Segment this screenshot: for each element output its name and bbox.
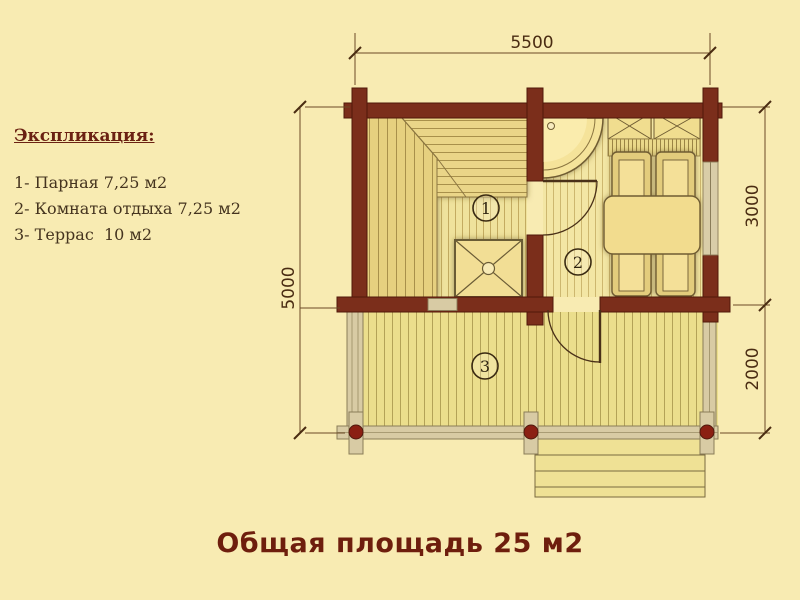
room-2-number: 2 [573, 253, 583, 272]
floor-plan-drawing: 1 2 3 5500 5000 [0, 0, 800, 600]
terrace-floor [363, 312, 718, 428]
wall-middle-right [600, 297, 730, 312]
floor-plan-page: Экспликация: 1- Парная 7,25 м2 2- Комнат… [0, 0, 800, 600]
wall-cabinets [608, 113, 700, 156]
dimension-left [294, 101, 350, 439]
post-top [700, 425, 714, 439]
wall-right-upper [703, 88, 718, 162]
room-1-number: 1 [481, 199, 491, 218]
sauna-stove [455, 240, 522, 297]
dimension-top-value: 5500 [510, 33, 553, 53]
dimension-left-value: 5000 [279, 266, 299, 309]
dimension-right-upper-value: 3000 [743, 184, 763, 227]
dining-table [604, 196, 700, 254]
post-top [349, 425, 363, 439]
wall-interior-upper [527, 88, 543, 181]
room-3-number: 3 [480, 357, 490, 376]
terrace-steps [535, 439, 705, 497]
post-top [524, 425, 538, 439]
wall-left [352, 88, 367, 312]
dimension-right-lower-value: 2000 [743, 347, 763, 390]
vent-middle-wall [428, 299, 457, 311]
